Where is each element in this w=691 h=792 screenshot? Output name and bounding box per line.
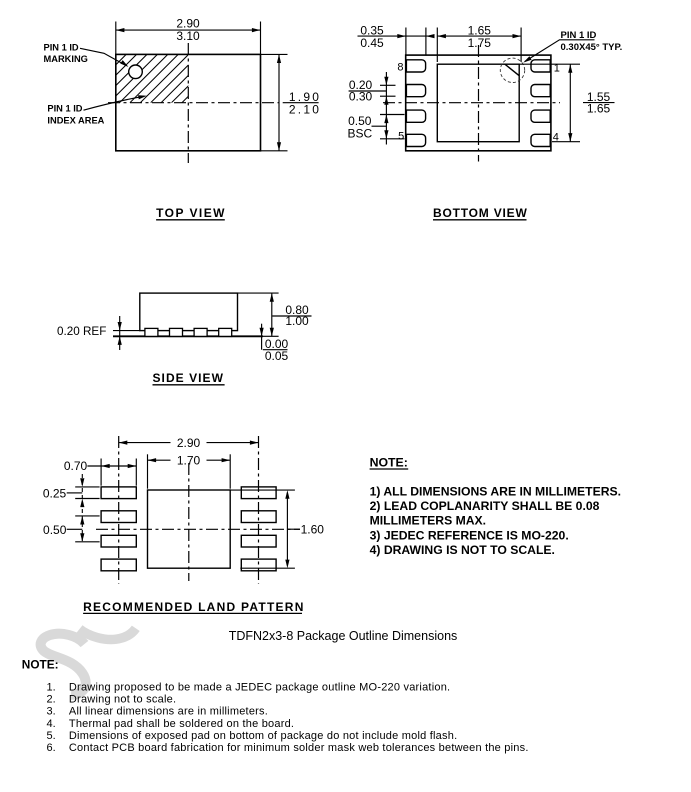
svg-text:5: 5 (398, 130, 404, 142)
svg-text:4.: 4. (47, 718, 56, 730)
svg-text:All linear dimensions are in m: All linear dimensions are in millimeters… (69, 706, 268, 718)
svg-text:RECOMMENDED LAND PATTERN: RECOMMENDED LAND PATTERN (83, 600, 305, 614)
svg-text:Drawing not to scale.: Drawing not to scale. (69, 693, 176, 705)
svg-text:2) LEAD COPLANARITY SHALL BE 0: 2) LEAD COPLANARITY SHALL BE 0.08 (370, 499, 600, 513)
svg-text:0.30X45° TYP.: 0.30X45° TYP. (561, 42, 623, 53)
svg-text:INDEX AREA: INDEX AREA (47, 115, 104, 125)
svg-text:1) ALL DIMENSIONS ARE IN MILLI: 1) ALL DIMENSIONS ARE IN MILLIMETERS. (370, 484, 621, 498)
svg-text:1.65: 1.65 (587, 101, 611, 115)
svg-text:BSC: BSC (347, 127, 372, 141)
svg-text:Contact PCB board fabrication: Contact PCB board fabrication for minimu… (69, 742, 529, 754)
svg-text:1.75: 1.75 (468, 36, 492, 50)
svg-text:2.90: 2.90 (177, 436, 201, 450)
svg-text:0.45: 0.45 (360, 36, 384, 50)
svg-text:5.: 5. (47, 730, 56, 742)
svg-text:1.: 1. (47, 681, 56, 693)
svg-text:3.: 3. (47, 706, 56, 718)
svg-text:Thermal pad shall be soldered: Thermal pad shall be soldered on the boa… (69, 718, 294, 730)
svg-text:SIDE VIEW: SIDE VIEW (153, 371, 224, 385)
svg-text:1.60: 1.60 (301, 522, 325, 536)
svg-text:TDFN2x3-8 Package Outline Dime: TDFN2x3-8 Package Outline Dimensions (229, 629, 458, 643)
svg-text:1.70: 1.70 (177, 453, 201, 467)
svg-text:0.70: 0.70 (64, 459, 88, 473)
svg-text:BOTTOM VIEW: BOTTOM VIEW (433, 206, 528, 220)
svg-text:2.: 2. (47, 693, 56, 705)
svg-text:MILLIMETERS MAX.: MILLIMETERS MAX. (370, 514, 486, 528)
svg-text:Drawing proposed to be made a: Drawing proposed to be made a JEDEC pack… (69, 681, 450, 693)
svg-text:6.: 6. (47, 742, 56, 754)
svg-text:PIN 1 ID: PIN 1 ID (47, 104, 82, 114)
svg-text:PIN 1 ID: PIN 1 ID (44, 42, 79, 52)
svg-text:0.05: 0.05 (265, 349, 289, 363)
svg-text:4) DRAWING IS NOT TO SCALE.: 4) DRAWING IS NOT TO SCALE. (370, 543, 555, 557)
svg-text:NOTE:: NOTE: (370, 456, 408, 470)
svg-text:Dimensions of exposed pad on b: Dimensions of exposed pad on bottom of p… (69, 730, 457, 742)
svg-text:0.20 REF: 0.20 REF (57, 325, 106, 338)
svg-text:3.10: 3.10 (176, 29, 200, 43)
svg-text:MARKING: MARKING (44, 54, 88, 64)
svg-text:0.50: 0.50 (43, 523, 67, 537)
svg-text:TOP VIEW: TOP VIEW (156, 206, 226, 220)
svg-text:2.10: 2.10 (289, 102, 321, 116)
svg-text:NOTE:: NOTE: (22, 657, 59, 671)
svg-text:0.25: 0.25 (43, 487, 67, 501)
svg-text:8: 8 (397, 61, 403, 73)
svg-text:3) JEDEC REFERENCE IS MO-220.: 3) JEDEC REFERENCE IS MO-220. (370, 528, 569, 542)
